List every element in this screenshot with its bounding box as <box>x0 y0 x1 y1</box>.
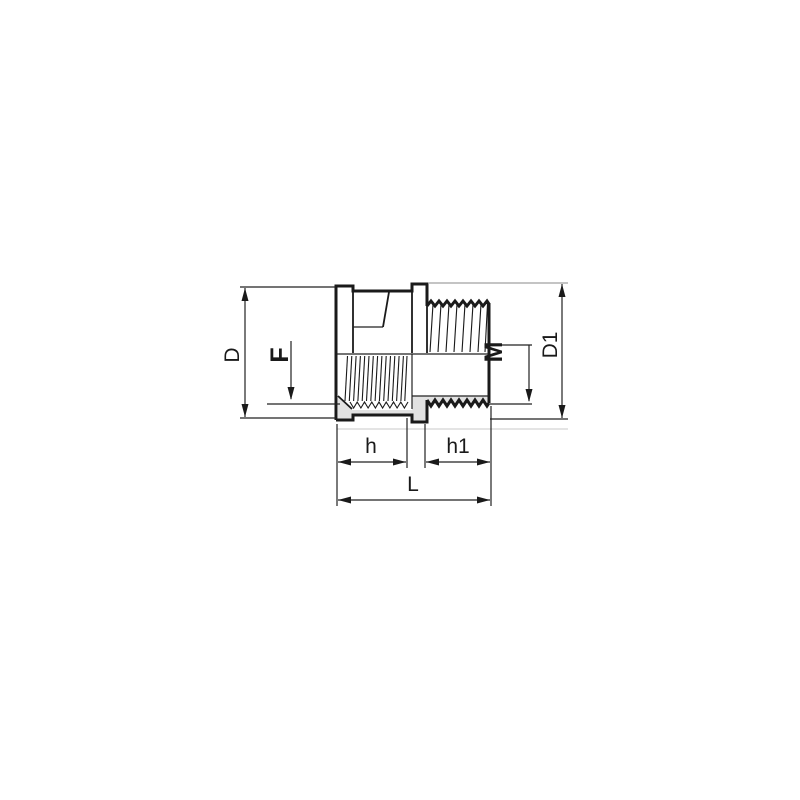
female-thread-root-profile <box>350 402 408 408</box>
label-h1: h1 <box>446 435 469 458</box>
female-thread-flanks <box>345 356 408 408</box>
arrowhead-M <box>526 389 533 402</box>
label-D1: D1 <box>539 332 562 359</box>
arrowhead-L-right <box>477 497 490 504</box>
arrowhead-L-left <box>338 497 351 504</box>
arrowhead-h1-left <box>426 459 439 466</box>
label-L: L <box>407 473 419 496</box>
dimension-h: h <box>338 435 406 466</box>
arrowhead-h1-right <box>477 459 490 466</box>
body-detail-lines <box>337 292 489 409</box>
fitting-dimension-diagram: D D1 F M h h1 L <box>0 0 800 800</box>
hex-corner-edge <box>383 292 389 327</box>
male-thread-flanks <box>430 304 488 352</box>
arrowhead-F <box>288 387 295 400</box>
arrowhead-D-up <box>242 288 249 301</box>
label-M: M <box>480 342 508 363</box>
male-thread-crest <box>427 301 489 306</box>
label-F: F <box>266 347 294 362</box>
arrowhead-D1-up <box>559 284 566 297</box>
dimension-h1: h1 <box>426 435 490 466</box>
dimension-D1: D1 <box>539 284 566 418</box>
arrowhead-h-left <box>338 459 351 466</box>
extension-lines <box>240 283 568 506</box>
label-D: D <box>221 347 244 362</box>
dimension-D: D <box>221 288 249 417</box>
dimension-L: L <box>338 473 490 504</box>
technical-drawing-canvas: D D1 F M h h1 L <box>0 0 800 800</box>
arrowhead-D1-down <box>559 405 566 418</box>
label-h: h <box>365 435 377 458</box>
arrowhead-h-right <box>393 459 406 466</box>
callout-F: F <box>266 341 340 404</box>
collar-wall-section <box>412 396 427 422</box>
arrowhead-D-down <box>242 404 249 417</box>
